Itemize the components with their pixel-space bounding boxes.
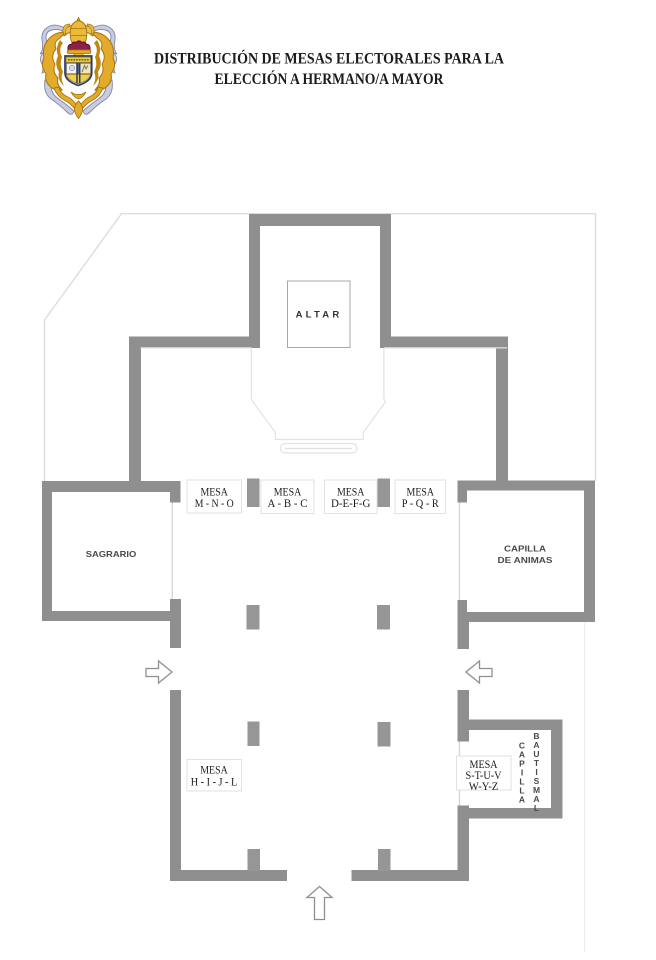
svg-text:MESA: MESA [200, 487, 228, 499]
svg-text:A: A [519, 795, 525, 805]
svg-text:A - B - C: A - B - C [268, 498, 308, 510]
svg-text:ALTAR: ALTAR [296, 310, 343, 321]
svg-text:CAPILLA: CAPILLA [504, 544, 546, 554]
svg-text:MESA: MESA [337, 487, 365, 499]
svg-text:MESA: MESA [274, 487, 302, 499]
svg-text:L: L [534, 803, 539, 813]
svg-text:H - I - J - L: H - I - J - L [191, 776, 238, 788]
svg-text:DISTRIBUCIÓN DE MESAS ELECTORA: DISTRIBUCIÓN DE MESAS ELECTORALES PARA L… [154, 49, 505, 68]
svg-text:ELECCIÓN A HERMANO/A MAYOR: ELECCIÓN A HERMANO/A MAYOR [215, 69, 445, 88]
svg-text:DE ANIMAS: DE ANIMAS [498, 555, 553, 565]
svg-text:MESA: MESA [407, 487, 435, 499]
svg-text:M - N - O: M - N - O [195, 498, 234, 510]
svg-text:P - Q - R: P - Q - R [402, 498, 439, 510]
svg-text:W-Y-Z: W-Y-Z [469, 781, 499, 793]
svg-text:D-E-F-G: D-E-F-G [331, 498, 371, 510]
svg-text:MESA: MESA [200, 765, 228, 777]
svg-text:SAGRARIO: SAGRARIO [86, 549, 137, 559]
